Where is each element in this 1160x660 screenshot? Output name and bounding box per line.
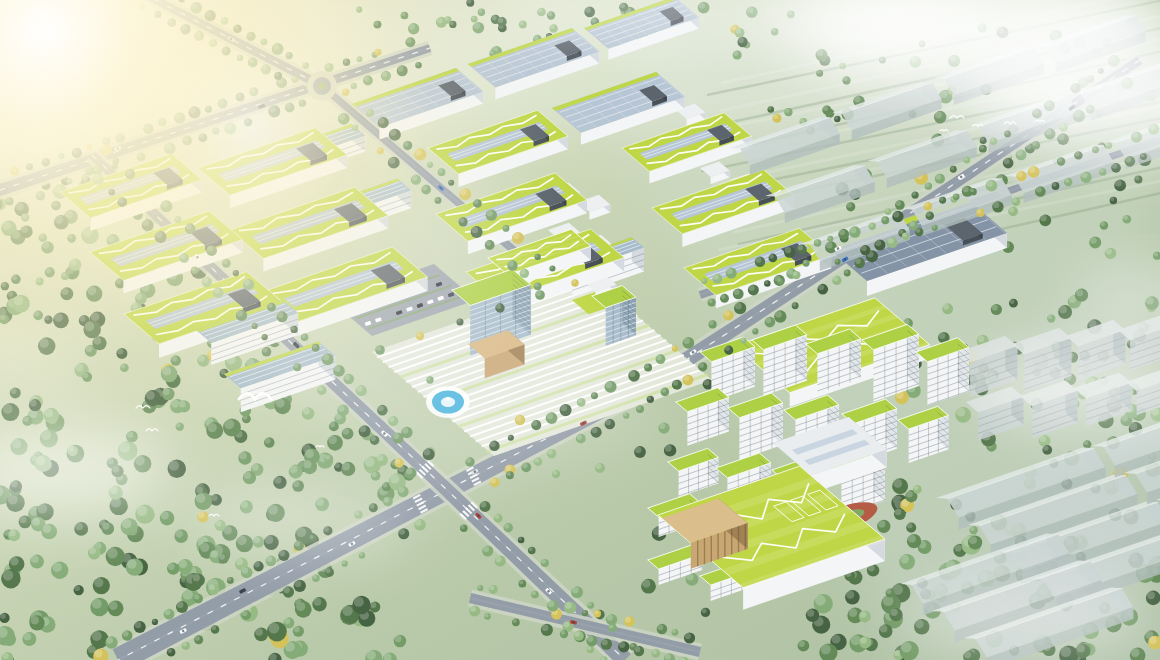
sun-glare [0, 0, 1160, 660]
masterplan-rendering [0, 0, 1160, 660]
aerial-scene-canvas [0, 0, 1160, 660]
